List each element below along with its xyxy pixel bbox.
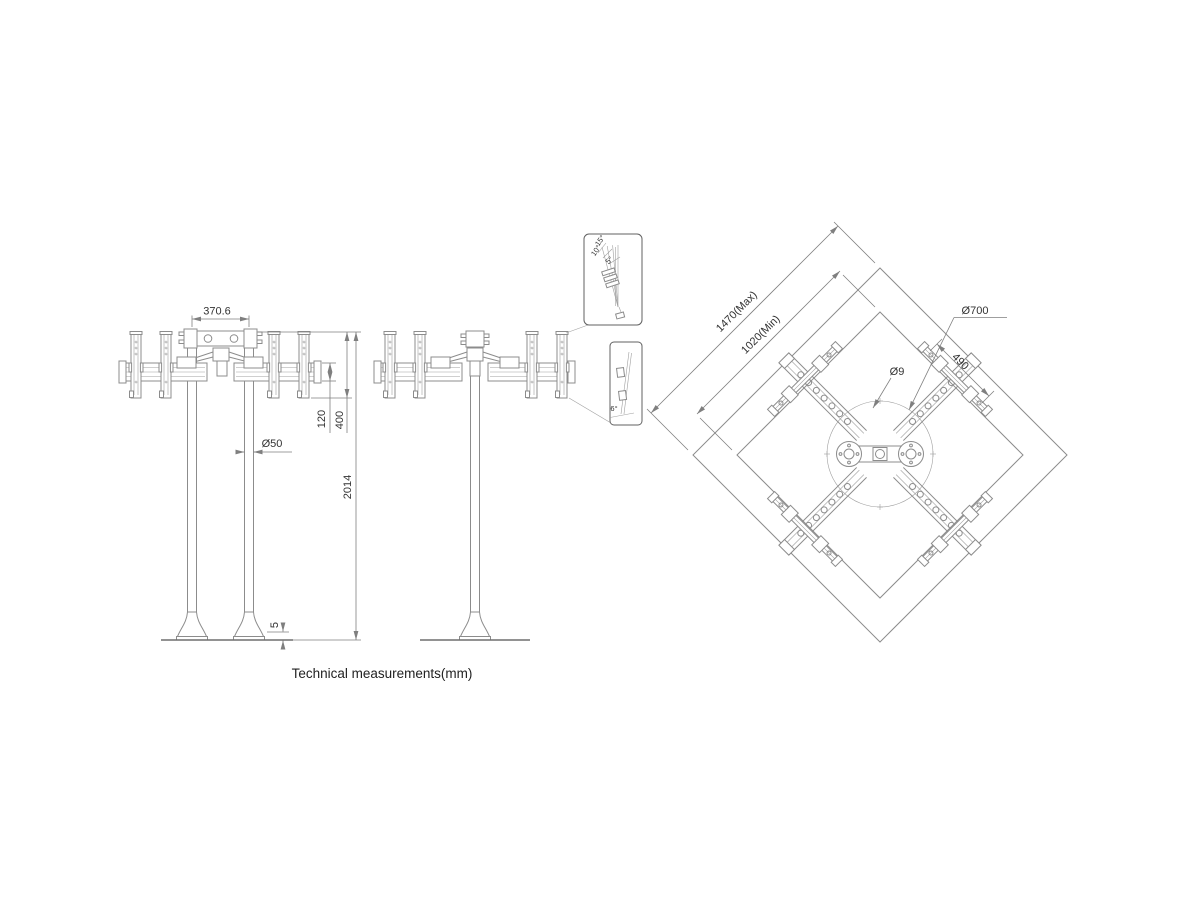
top-hub <box>837 442 924 467</box>
dim-base-diameter-label: Ø700 <box>962 305 989 317</box>
top-rail-bottom-left <box>766 490 843 567</box>
front-left-base <box>177 612 208 640</box>
front-crossbar <box>179 329 262 348</box>
swivel-detail-callout-line <box>569 398 611 423</box>
technical-drawing-page: 370.6 120 400 Ø50 2014 <box>0 0 1200 900</box>
dim-bracket-height-label: 120 <box>316 410 328 428</box>
front-right-pole <box>245 346 254 612</box>
side-pole <box>471 346 480 612</box>
side-view <box>374 325 611 640</box>
front-right-base <box>234 612 265 640</box>
tilt-detail-box: 15° 10° 5° <box>584 233 642 325</box>
front-rail-3 <box>267 332 281 399</box>
dim-hole-diameter-label: Ø9 <box>890 366 905 378</box>
technical-drawing: 370.6 120 400 Ø50 2014 <box>0 0 1200 900</box>
front-left-pole <box>188 346 197 612</box>
swivel-detail-box: 6° <box>610 342 642 425</box>
tilt-detail-callout-line <box>566 325 588 333</box>
top-rail-top-left <box>766 340 843 417</box>
front-view: 370.6 120 400 Ø50 2014 <box>119 306 361 650</box>
front-rail-1 <box>129 332 143 399</box>
dim-rail-length-label: 490 <box>949 351 970 372</box>
side-top-clamp <box>461 331 489 347</box>
dim-pole-spacing-label: 370.6 <box>203 306 231 318</box>
dim-pole-spacing: 370.6 <box>192 306 249 328</box>
side-rail-1 <box>383 332 397 399</box>
swivel-angle-label: 6° <box>610 404 617 413</box>
top-rail-bottom-right <box>916 490 993 567</box>
drawing-caption: Technical measurements(mm) <box>292 666 473 681</box>
dim-width-max-label: 1470(Max) <box>714 289 760 335</box>
side-rail-4 <box>555 332 569 399</box>
top-view: 1470(Max) 1020(Min) 490 Ø700 Ø9 <box>647 222 1067 642</box>
dim-rail-height-label: 400 <box>334 411 346 429</box>
dim-total-height-label: 2014 <box>342 475 354 499</box>
dim-base-thickness-label: 5 <box>269 622 281 628</box>
side-rail-2 <box>413 332 427 399</box>
front-rail-4 <box>297 332 311 399</box>
dim-pole-diameter-label: Ø50 <box>262 438 283 450</box>
dim-base-thickness: 5 <box>267 622 289 649</box>
side-rail-3 <box>525 332 539 399</box>
top-rail-top-right <box>916 340 993 417</box>
front-rail-2 <box>159 332 173 399</box>
side-base <box>460 612 491 640</box>
